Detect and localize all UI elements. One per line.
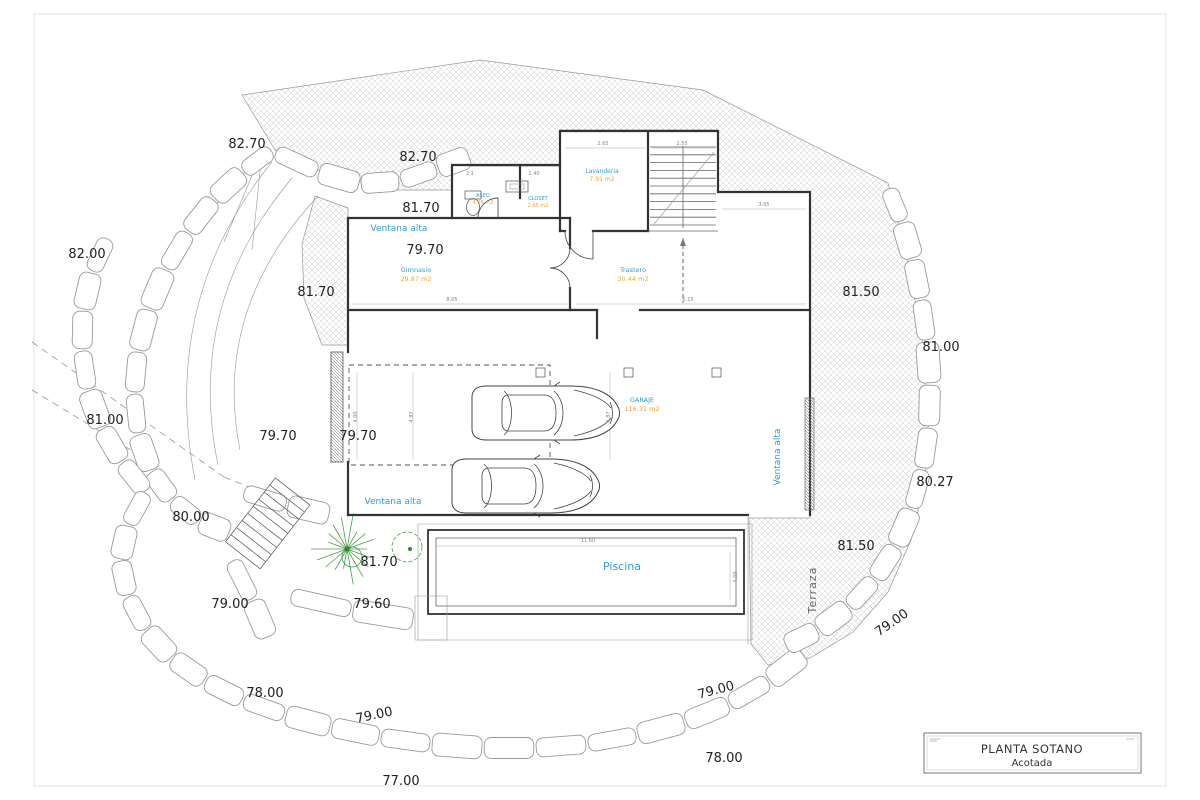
stone: [159, 228, 195, 272]
palm-frond: [347, 534, 365, 549]
ventana-alta-label-right: Ventana alta: [773, 429, 783, 486]
elevation-label: 81.70: [360, 555, 397, 570]
elevation-label: 79.00: [211, 597, 248, 612]
stone: [202, 673, 246, 708]
room-name-lavanderia: Lavanderia: [585, 168, 619, 175]
elevation-label: 79.00: [872, 606, 911, 640]
room-area-aseo: 4.26 m2: [473, 200, 494, 206]
elevation-label: 79.60: [353, 597, 390, 612]
elevation-label: 81.70: [402, 201, 439, 216]
sink-icon: [506, 181, 528, 192]
interior-stairs-icon: [650, 146, 716, 303]
ventana-alta-label-bottom: Ventana alta: [365, 497, 422, 507]
title-block-subtitle: Acotada: [1012, 758, 1053, 769]
room-area-garaje: 116.31 m2: [624, 405, 659, 413]
stone: [635, 712, 686, 746]
dim-label: 4.87: [606, 411, 612, 422]
drawing-sheet: 82.70 82.70 81.70 79.70 81.70 82.00 81.0…: [0, 0, 1200, 800]
stone: [121, 489, 153, 528]
stone: [242, 484, 288, 513]
stone: [431, 733, 482, 760]
elevation-label: 79.70: [259, 429, 296, 444]
dim-label: 4.00: [733, 571, 739, 582]
elevation-label: 81.00: [922, 340, 959, 355]
elevation-label: 82.00: [68, 247, 105, 262]
stone: [73, 350, 96, 390]
terraza-label: Terraza: [806, 567, 819, 615]
stone: [289, 588, 352, 618]
stone: [111, 559, 138, 597]
room-name-closet: CLOSET: [528, 196, 548, 202]
elevation-label: 80.00: [172, 510, 209, 525]
stone: [125, 351, 148, 392]
stone: [181, 194, 221, 237]
elevation-label: 82.70: [228, 137, 265, 152]
stone: [286, 495, 332, 526]
dim-label: 8.05: [446, 297, 457, 303]
dim-label: 11.60: [581, 538, 595, 544]
stone: [536, 735, 587, 758]
stone: [360, 171, 399, 194]
elevation-label: 81.50: [837, 539, 874, 554]
dim-label: 1.40: [528, 171, 539, 177]
elevation-label: 82.70: [399, 150, 436, 165]
palm-frond: [347, 539, 373, 549]
stair-tread: [231, 535, 266, 562]
stair-tread: [242, 520, 277, 547]
car-icon-1: [472, 382, 620, 444]
stone: [126, 393, 147, 433]
elevation-label: 78.00: [705, 751, 742, 766]
car-icon-2: [452, 455, 600, 517]
stone: [94, 424, 131, 466]
elevation-label: 78.00: [246, 686, 283, 701]
dim-label: 2.65: [597, 141, 608, 147]
floor-plan-canvas: 82.70 82.70 81.70 79.70 81.70 82.00 81.0…: [0, 0, 1200, 800]
elevation-label: 77.00: [382, 774, 419, 789]
stone: [110, 524, 139, 561]
stair-direction-arrow: [680, 238, 686, 246]
site-hatch-region: [242, 60, 929, 665]
stone: [72, 311, 93, 349]
room-area-trastero: 30.44 m2: [617, 275, 648, 283]
title-block-title: PLANTA SOTANO: [981, 742, 1083, 756]
palm-frond: [328, 542, 347, 549]
dim-label: 2.1: [466, 171, 474, 177]
room-area-closet: 2.65 m2: [528, 203, 549, 209]
dim-label: 3.65: [758, 202, 769, 208]
elevation-label: 79.00: [355, 704, 395, 726]
stair-tread: [248, 513, 283, 540]
stone: [587, 727, 638, 752]
dim-label: 4.87: [409, 411, 415, 422]
stone: [484, 738, 534, 759]
stone: [380, 728, 431, 752]
elevation-label: 79.70: [406, 243, 443, 258]
elevation-label: 81.00: [86, 413, 123, 428]
stone: [919, 385, 941, 426]
elevation-label: 81.70: [297, 285, 334, 300]
doors: [478, 198, 593, 288]
room-name-gimnasio: Gimnasio: [401, 266, 431, 274]
dim-label: 2.55: [676, 141, 687, 147]
ventana-alta-label-top: Ventana alta: [371, 224, 428, 234]
window-strip-right: [805, 398, 814, 510]
stone: [128, 308, 159, 353]
piscina-label: Piscina: [603, 560, 641, 573]
room-name-garaje: GARAJE: [630, 396, 654, 404]
room-area-gimnasio: 29.87 m2: [400, 275, 431, 283]
elevation-label: 80.27: [916, 475, 953, 490]
dim-label: 4.00: [353, 411, 359, 422]
room-name-aseo: ASEO: [476, 193, 490, 199]
elevation-label: 81.50: [842, 285, 879, 300]
stair-tread: [237, 528, 272, 555]
stone: [167, 650, 210, 689]
room-area-lavanderia: 7.91 m2: [590, 176, 615, 183]
column-markers: [536, 368, 721, 377]
pool: [415, 515, 752, 644]
elevation-label: 79.70: [339, 429, 376, 444]
palm-frond: [329, 534, 347, 549]
window-strip-left: [331, 352, 343, 462]
title-block: PLANTA SOTANO Acotada: [924, 733, 1141, 773]
stone: [121, 593, 154, 633]
stone: [73, 271, 103, 312]
dim-label: 6.15: [682, 297, 693, 303]
room-name-trastero: Trastero: [619, 266, 646, 274]
stone: [283, 705, 332, 738]
stone: [139, 266, 176, 313]
